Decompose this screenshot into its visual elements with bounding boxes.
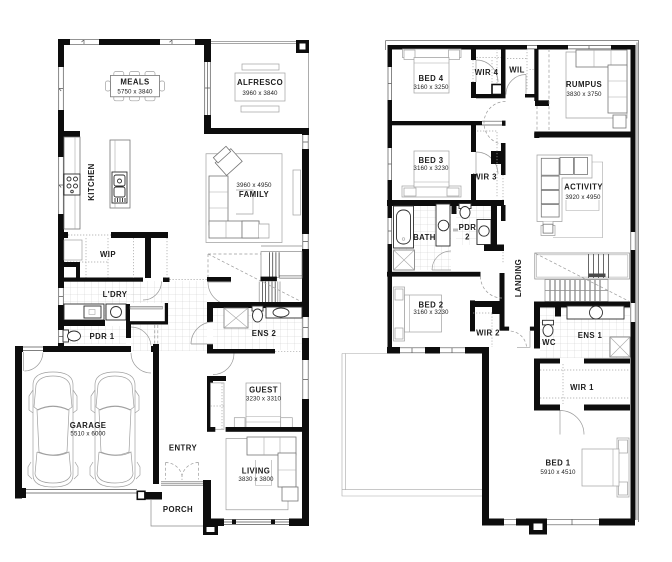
svg-text:3160 x 3230: 3160 x 3230 (413, 165, 449, 172)
svg-text:ALFRESCO: ALFRESCO (237, 78, 283, 87)
svg-text:L'DRY: L'DRY (103, 290, 128, 299)
svg-text:3960 x 3840: 3960 x 3840 (242, 90, 278, 97)
svg-text:BED 4: BED 4 (419, 74, 444, 83)
svg-text:KITCHEN: KITCHEN (87, 163, 96, 200)
svg-text:ENTRY: ENTRY (169, 443, 198, 452)
svg-text:WC: WC (542, 338, 556, 347)
svg-text:PORCH: PORCH (163, 505, 193, 514)
svg-text:BED 3: BED 3 (419, 156, 444, 165)
svg-text:BATH: BATH (413, 233, 436, 242)
svg-text:PDR 1: PDR 1 (90, 332, 115, 341)
svg-text:3920 x 4950: 3920 x 4950 (565, 194, 601, 201)
svg-text:WIR 4: WIR 4 (475, 68, 499, 77)
svg-text:3160 x 3230: 3160 x 3230 (413, 309, 449, 316)
svg-text:WIL: WIL (509, 66, 525, 75)
svg-text:BED 1: BED 1 (546, 459, 571, 468)
svg-text:WIR 3: WIR 3 (473, 173, 497, 182)
svg-text:3830 x 3800: 3830 x 3800 (238, 476, 274, 483)
svg-text:RUMPUS: RUMPUS (566, 80, 602, 89)
svg-text:PDR: PDR (459, 223, 477, 232)
svg-text:MEALS: MEALS (120, 77, 149, 86)
svg-text:ACTIVITY: ACTIVITY (564, 183, 603, 192)
svg-text:3160 x 3250: 3160 x 3250 (413, 84, 449, 91)
svg-text:3830 x 3750: 3830 x 3750 (566, 91, 602, 98)
svg-text:ENS 2: ENS 2 (252, 329, 277, 338)
svg-text:3960 x 4950: 3960 x 4950 (236, 182, 272, 189)
svg-text:ENS 1: ENS 1 (578, 331, 603, 340)
svg-text:WIR 2: WIR 2 (476, 329, 500, 338)
svg-text:5750 x 3840: 5750 x 3840 (117, 89, 153, 96)
svg-text:5510 x 6000: 5510 x 6000 (70, 431, 106, 438)
svg-text:3230 x 3310: 3230 x 3310 (246, 396, 282, 403)
svg-text:2: 2 (465, 233, 470, 242)
svg-text:WIR 1: WIR 1 (570, 383, 594, 392)
svg-text:GARAGE: GARAGE (70, 421, 107, 430)
svg-text:5910 x 4510: 5910 x 4510 (540, 469, 576, 476)
svg-text:FAMILY: FAMILY (239, 190, 270, 199)
svg-text:LANDING: LANDING (514, 259, 523, 297)
svg-text:LIVING: LIVING (242, 467, 270, 476)
svg-text:GUEST: GUEST (249, 386, 278, 395)
svg-text:WIP: WIP (100, 250, 116, 259)
